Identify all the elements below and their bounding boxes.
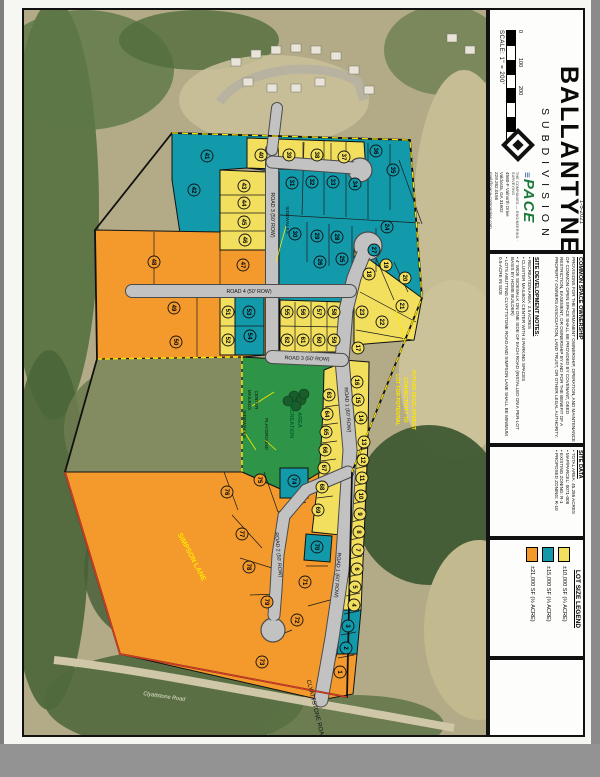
text-line: • EXISTING ZONING: R-1: [559, 450, 565, 538]
scanner-background-right: [591, 0, 600, 777]
lot-number: 57: [315, 309, 321, 316]
text-line: 4560-F Valnorth Drive: [504, 172, 510, 252]
lot-marker: 14: [355, 412, 367, 424]
lot-marker: 1: [334, 666, 346, 678]
lot-marker: 59: [328, 334, 340, 346]
existing-house: [331, 52, 341, 60]
lot-number: 31: [288, 180, 294, 187]
lot-marker: 29: [311, 230, 323, 242]
lot-number: 69: [314, 507, 320, 514]
lot-marker: 66: [319, 444, 331, 456]
firm-address: 4560-F Valnorth DriveValdosta, GA 316022…: [488, 172, 510, 252]
lot-number: 70: [313, 544, 319, 551]
lot-marker: 79: [261, 596, 273, 608]
lot-marker: 27: [368, 244, 380, 256]
lot-marker: 48: [148, 256, 160, 268]
site-data-box: SITE DATA • TOTAL AREA: 45.286 ACRES• MA…: [488, 445, 585, 538]
lot-number: 77: [238, 531, 244, 538]
lot-marker: 24: [381, 221, 393, 233]
map-label: RECREATION: [288, 402, 294, 439]
lot-marker: 37: [338, 151, 350, 163]
legend-swatch: [558, 547, 570, 562]
lot-marker: 71: [299, 576, 311, 588]
lot-number: 30: [291, 231, 297, 238]
lot-marker: 56: [297, 306, 309, 318]
existing-house: [349, 66, 359, 74]
lot-number: 27: [370, 247, 376, 254]
lot-number: 76: [223, 489, 229, 496]
text-line: • 4' WIDE SIDEWALK ON ONE SIDE OF EACH R…: [515, 257, 521, 445]
lot-number: 13: [360, 439, 366, 446]
lot-marker: 26: [314, 256, 326, 268]
lot-marker: 55: [281, 306, 293, 318]
lot-marker: 78: [243, 561, 255, 573]
lot-number: 42: [190, 187, 196, 194]
lot-number: 58: [330, 309, 336, 316]
text-line: • TOTAL AREA: 45.286 ACRES: [570, 450, 576, 538]
lot-marker: 18: [363, 268, 375, 280]
lot-marker: 49: [168, 302, 180, 314]
lot-marker: 17: [352, 342, 364, 354]
lot-marker: 43: [238, 180, 250, 192]
lot-number: 19: [382, 262, 388, 269]
lot-marker: 42: [188, 184, 200, 196]
lot-number: 37: [340, 154, 346, 161]
lot-marker: 62: [281, 334, 293, 346]
cul-de-sac-bulb-fill: [263, 620, 283, 640]
lot-marker: 5: [349, 581, 361, 593]
lot-number: 26: [316, 259, 322, 266]
lot-marker: 46: [239, 234, 251, 246]
lot-marker: 72: [291, 614, 303, 626]
text-line: BASIS BY HOME BUILDER): [509, 257, 515, 445]
lot-number: 24: [383, 224, 389, 231]
text-line: • CLUSTER MAILBOX CENTER WITH 4 PARKING …: [520, 257, 526, 445]
lot-marker: 9: [354, 508, 366, 520]
lot-marker: 73: [256, 656, 268, 668]
legend-swatch: [526, 547, 538, 562]
lot-number: 43: [240, 183, 246, 190]
lot-marker: 16: [351, 376, 363, 388]
lot-number: 75: [256, 477, 262, 484]
legend-heading: LOT SIZE LEGEND: [574, 541, 581, 657]
lot-marker: 22: [376, 316, 388, 328]
lot-number: 16: [353, 379, 359, 386]
text-line: • PROPOSED ZONING: R-10: [553, 450, 559, 538]
legend-label: ±10,000 SF (¼ ACRE): [561, 566, 567, 622]
lot-marker: 15: [352, 394, 364, 406]
lot-marker: 61: [297, 334, 309, 346]
lot-marker: 28: [331, 231, 343, 243]
lot-marker: 23: [356, 306, 368, 318]
lot-marker: 47: [237, 259, 249, 271]
lot-marker: 10: [355, 490, 367, 502]
lot-number: 12: [359, 457, 365, 464]
lot-marker: 31: [286, 177, 298, 189]
tree-icon: [299, 389, 309, 399]
lot-number: 49: [170, 305, 176, 312]
lot-number: 78: [245, 564, 251, 571]
legend-item: ±10,000 SF (¼ ACRE): [558, 547, 570, 657]
lot-number: 36: [372, 148, 378, 155]
lot-marker: 64: [321, 408, 333, 420]
map-label: FUTURE DEVELOPMENT: [410, 370, 416, 430]
cul-de-sac-bulb-fill: [350, 160, 370, 180]
plan-date: 1-5-2021: [578, 200, 584, 224]
existing-house: [291, 44, 301, 52]
lot-number: 15: [354, 397, 360, 404]
common-space-text: PROVISIONS FOR THE PERMANENT OWNERSHIP, …: [553, 257, 576, 445]
lot-number: 60: [315, 337, 321, 344]
common-space-heading: COMMON SPACE OWNERSHIP: [577, 257, 583, 445]
lot-number: 72: [293, 617, 299, 624]
lot-number: 14: [357, 415, 363, 422]
lot-marker: 32: [306, 176, 318, 188]
lot-number: 25: [338, 256, 344, 263]
map-label: PLAYGROUND: [264, 418, 269, 451]
lot-marker: 6: [351, 563, 363, 575]
lot-number: 54: [246, 333, 252, 340]
lot-number: 33: [329, 179, 335, 186]
existing-house: [271, 46, 281, 54]
lot-number: 71: [301, 579, 307, 586]
map-label: CENTER: [254, 391, 259, 411]
site-data-heading: SITE DATA: [577, 450, 583, 538]
lot-marker: 51: [222, 306, 234, 318]
existing-house: [447, 34, 457, 42]
existing-house: [315, 78, 325, 86]
lot-marker: 35: [387, 164, 399, 176]
lot-marker: 57: [313, 306, 325, 318]
firm-diamond-logo: [499, 130, 533, 164]
text-line: mail@pace-companies.com: [488, 172, 493, 252]
map-label: ROAD 3 (50' ROW): [269, 192, 275, 237]
lot-number: 56: [299, 309, 305, 316]
road-entry-stub: [272, 108, 277, 150]
existing-house: [291, 84, 301, 92]
lot-number: 41: [203, 153, 209, 160]
text-line: PROVISIONS FOR THE PERMANENT OWNERSHIP, …: [570, 257, 576, 445]
lot-number: 53: [245, 309, 251, 316]
lot-number: 28: [333, 234, 339, 241]
lot-number: 44: [240, 200, 246, 207]
text-line: • LOTS ABUTTING CLYATTSTONE ROAD AND SIM…: [503, 257, 509, 445]
legend-rows: ±10,000 SF (¼ ACRE)±15,000 SF (⅓ ACRE)±2…: [526, 541, 570, 657]
lot-marker: 67: [318, 462, 330, 474]
lot-marker: 40: [255, 149, 267, 161]
map-label: CONNECTIVITY TO: [402, 377, 408, 422]
lot-marker: 11: [356, 472, 368, 484]
lot-marker: 53: [243, 306, 255, 318]
lot-number: 79: [263, 599, 269, 606]
lot-marker: 41: [201, 150, 213, 162]
lot-marker: 30: [289, 228, 301, 240]
existing-house: [311, 46, 321, 54]
lot-marker: 38: [311, 149, 323, 161]
lot-marker: 13: [358, 436, 370, 448]
empty-box: [488, 658, 585, 737]
legend-item: ±21,000 SF (½ ACRE): [526, 547, 538, 657]
lot-number: 55: [283, 309, 289, 316]
text-line: • RECREATION AREA: 2.5 ACRES: [526, 257, 532, 445]
legend-swatch: [542, 547, 554, 562]
legend-label: ±21,000 SF (½ ACRE): [529, 566, 535, 622]
lot-number: 11: [358, 475, 364, 482]
firm-name: ≡PACE: [519, 172, 535, 252]
lot-number: 74: [290, 478, 296, 485]
map-label: AREA: [296, 412, 302, 428]
text-line: • MAP/PARCEL: 0071-008: [564, 450, 570, 538]
page-subtitle: SUBDIVISION: [539, 108, 551, 242]
lot-number: 68: [318, 484, 324, 491]
lot-number: 17: [354, 345, 360, 352]
firm-logo-block: ≡PACE THE COMPANIES — ENGINEERING · SURV…: [488, 172, 535, 252]
lot-number: 66: [321, 447, 327, 454]
lot-marker: 8: [353, 526, 365, 538]
lot-marker: 63: [323, 389, 335, 401]
lot-number: 20: [401, 275, 407, 282]
lot-number: 35: [389, 167, 395, 174]
lot-number: 59: [330, 337, 336, 344]
lot-number: 73: [258, 659, 264, 666]
map-label: ROAD 4 (50' ROW): [226, 289, 271, 295]
map-label: MAILBOX: [247, 390, 252, 410]
lot-marker: 39: [283, 149, 295, 161]
lot-marker: 50: [170, 336, 182, 348]
lot-marker: 3: [342, 620, 354, 632]
lot-number: 52: [224, 337, 230, 344]
site-dev-notes-heading: SITE DEVELOPMENT NOTES:: [533, 257, 539, 445]
lot-number: 50: [172, 339, 178, 346]
lot-marker: 69: [312, 504, 324, 516]
lot-marker: 58: [328, 306, 340, 318]
lot-number: 10: [357, 493, 363, 500]
lot-marker: 36: [370, 145, 382, 157]
notes-box: COMMON SPACE OWNERSHIP PROVISIONS FOR TH…: [488, 252, 585, 445]
map-label: SIDEWALKS: [241, 410, 247, 438]
lot-marker: 60: [313, 334, 325, 346]
lot-number: 45: [240, 219, 246, 226]
lot-marker: 7: [352, 544, 364, 556]
lot-marker: 74: [288, 475, 300, 487]
lot-marker: 45: [238, 216, 250, 228]
existing-house: [364, 86, 374, 94]
lot-number: 63: [325, 392, 331, 399]
lot-marker: 54: [244, 330, 256, 342]
existing-house: [465, 46, 475, 54]
lot-number: 40: [257, 152, 263, 159]
lot-number: 48: [150, 259, 156, 266]
lot-number: 64: [323, 411, 329, 418]
lot-marker: 12: [357, 454, 369, 466]
lot-marker: 19: [380, 259, 392, 271]
lot-number: 22: [378, 319, 384, 326]
map-label: LOT FOR POTENTIAL: [394, 374, 400, 426]
lot-marker: 65: [320, 426, 332, 438]
lot-marker: 44: [238, 197, 250, 209]
map-frame: 4039383741423635313233343029282726252443…: [22, 8, 488, 737]
existing-house: [251, 50, 261, 58]
lot-marker: 4: [348, 599, 360, 611]
lot-marker: 70: [311, 541, 323, 553]
text-line: Valdosta, GA 31602: [499, 172, 505, 252]
lot-number: 39: [285, 152, 291, 159]
lot-number: 67: [320, 465, 326, 472]
site-dev-notes-text: • RECREATION AREA: 2.5 ACRES• CLUSTER MA…: [497, 257, 532, 445]
lot-number: 38: [313, 152, 319, 159]
page-title: BALLANTYNE: [554, 66, 583, 252]
lot-number: 18: [365, 271, 371, 278]
firm-tagline: THE COMPANIES — ENGINEERING · SURVEYING: [511, 172, 519, 252]
lot-marker: 76: [221, 486, 233, 498]
lot-marker: 34: [349, 178, 361, 190]
plat-map: 4039383741423635313233343029282726252443…: [24, 10, 486, 735]
scanned-plat-sheet: { "title_block": { "title": "BALLANTYNE"…: [0, 0, 600, 777]
lot-number: 21: [398, 303, 404, 310]
lot-marker: 68: [316, 481, 328, 493]
lot-number: 29: [313, 233, 319, 240]
legend-item: ±15,000 SF (⅓ ACRE): [542, 547, 554, 657]
lot-number: 65: [322, 429, 328, 436]
lot-marker: 52: [222, 334, 234, 346]
text-line: PROPERTY OWNERS ASSOCIATION, LAND TRUST,…: [553, 257, 559, 445]
lot-marker: 33: [327, 176, 339, 188]
lot-marker: 75: [254, 474, 266, 486]
existing-house: [267, 84, 277, 92]
lot-number: 47: [239, 262, 245, 269]
scanner-background-bottom: [0, 744, 600, 777]
lot-marker: 77: [236, 528, 248, 540]
text-line: RESTRICTION, EASEMENT, OR OWNERSHIP BY A…: [559, 257, 565, 445]
titleblock-box: BALLANTYNE SUBDIVISION 1-5-2021 01002004…: [488, 8, 585, 252]
lot-number: 61: [299, 337, 305, 344]
legend-label: ±15,000 SF (⅓ ACRE): [545, 566, 551, 622]
map-label: SIDEWALKS: [284, 206, 290, 234]
lot-number: 51: [224, 309, 230, 316]
lot-marker: 21: [396, 300, 408, 312]
scale-label: SCALE: 1" = 200': [498, 30, 504, 146]
existing-house: [231, 58, 241, 66]
lot-marker: 20: [399, 272, 411, 284]
lot-number: 23: [358, 309, 364, 316]
legend-box: LOT SIZE LEGEND ±10,000 SF (¼ ACRE)±15,0…: [488, 538, 585, 658]
site-data-text: • TOTAL AREA: 45.286 ACRES• MAP/PARCEL: …: [553, 450, 576, 538]
text-line: 229.262.0156: [493, 172, 499, 252]
lot-marker: 25: [336, 253, 348, 265]
lot-marker: 2: [340, 642, 352, 654]
lot-number: 34: [351, 181, 357, 188]
lot-number: 46: [241, 237, 247, 244]
lot-number: 62: [283, 337, 289, 344]
lot-number: 32: [308, 179, 314, 186]
existing-house: [243, 78, 253, 86]
